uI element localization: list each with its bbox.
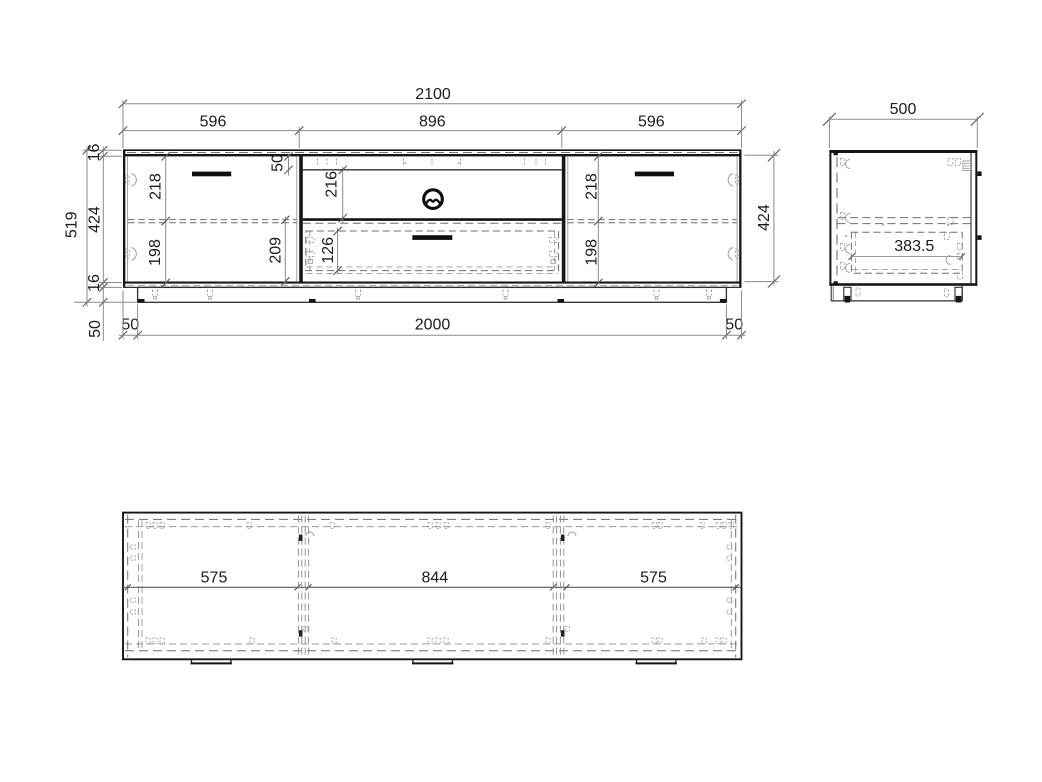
svg-text:596: 596 <box>638 114 665 131</box>
svg-text:424: 424 <box>87 206 104 233</box>
svg-text:500: 500 <box>890 101 917 118</box>
svg-text:896: 896 <box>419 114 446 131</box>
svg-text:209: 209 <box>268 237 285 264</box>
svg-text:16: 16 <box>86 144 103 162</box>
svg-text:424: 424 <box>756 204 773 231</box>
svg-text:50: 50 <box>725 317 743 334</box>
svg-text:575: 575 <box>640 569 667 586</box>
svg-text:218: 218 <box>584 173 601 200</box>
svg-text:198: 198 <box>584 239 601 266</box>
svg-text:50: 50 <box>121 317 139 334</box>
svg-text:126: 126 <box>320 237 337 264</box>
svg-text:216: 216 <box>324 171 341 198</box>
svg-text:16: 16 <box>86 274 103 292</box>
svg-text:198: 198 <box>147 239 164 266</box>
svg-text:2000: 2000 <box>415 317 451 334</box>
svg-text:50: 50 <box>87 320 104 338</box>
svg-text:50: 50 <box>269 154 286 172</box>
svg-text:596: 596 <box>200 114 227 131</box>
svg-text:2100: 2100 <box>415 86 451 103</box>
svg-text:383.5: 383.5 <box>894 238 934 255</box>
svg-text:575: 575 <box>201 569 228 586</box>
svg-text:844: 844 <box>421 569 448 586</box>
svg-text:519: 519 <box>64 211 81 238</box>
svg-text:218: 218 <box>148 173 165 200</box>
